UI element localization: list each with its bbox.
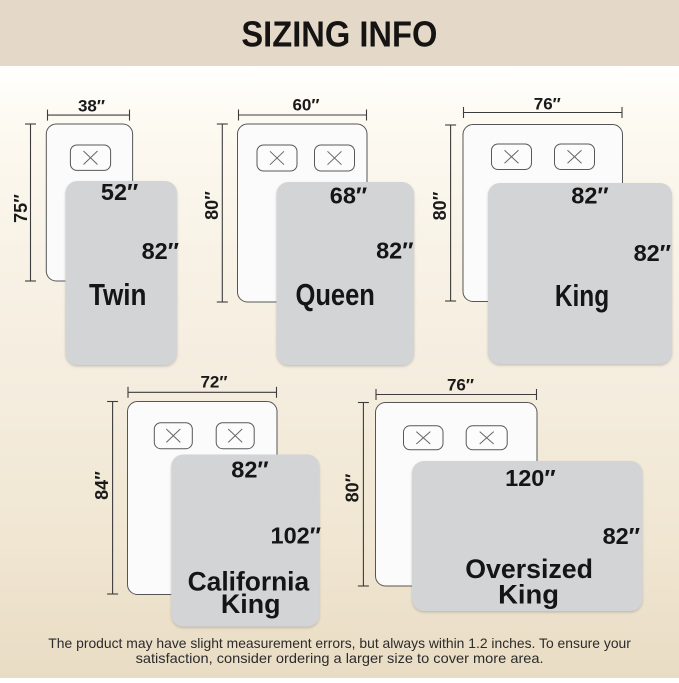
- svg-text:82″: 82″: [231, 457, 268, 483]
- svg-text:82″: 82″: [571, 183, 608, 209]
- svg-text:satisfaction, consider orderin: satisfaction, consider ordering a larger…: [136, 650, 544, 666]
- svg-text:82″: 82″: [142, 238, 179, 264]
- svg-text:King: King: [498, 580, 559, 610]
- svg-text:82″: 82″: [376, 238, 413, 264]
- svg-text:The product may have slight me: The product may have slight measurement …: [48, 635, 631, 651]
- svg-text:SIZING INFO: SIZING INFO: [241, 14, 437, 55]
- svg-text:80″: 80″: [343, 473, 363, 502]
- svg-text:72″: 72″: [200, 373, 227, 392]
- svg-text:King: King: [555, 278, 609, 313]
- svg-text:King: King: [221, 589, 281, 619]
- svg-text:Queen: Queen: [296, 277, 375, 312]
- svg-text:68″: 68″: [330, 183, 367, 209]
- svg-text:120″: 120″: [505, 465, 555, 491]
- svg-text:102″: 102″: [271, 523, 321, 549]
- svg-text:Twin: Twin: [89, 277, 147, 312]
- svg-text:52″: 52″: [101, 179, 138, 205]
- svg-text:80″: 80″: [202, 191, 222, 220]
- svg-text:84″: 84″: [92, 471, 112, 500]
- svg-text:38″: 38″: [78, 97, 105, 116]
- svg-text:80″: 80″: [430, 191, 450, 220]
- svg-text:82″: 82″: [634, 240, 671, 266]
- svg-text:75″: 75″: [11, 194, 31, 223]
- svg-text:60″: 60″: [292, 96, 319, 115]
- svg-text:76″: 76″: [534, 95, 561, 114]
- svg-text:82″: 82″: [603, 523, 640, 549]
- svg-text:76″: 76″: [447, 376, 474, 395]
